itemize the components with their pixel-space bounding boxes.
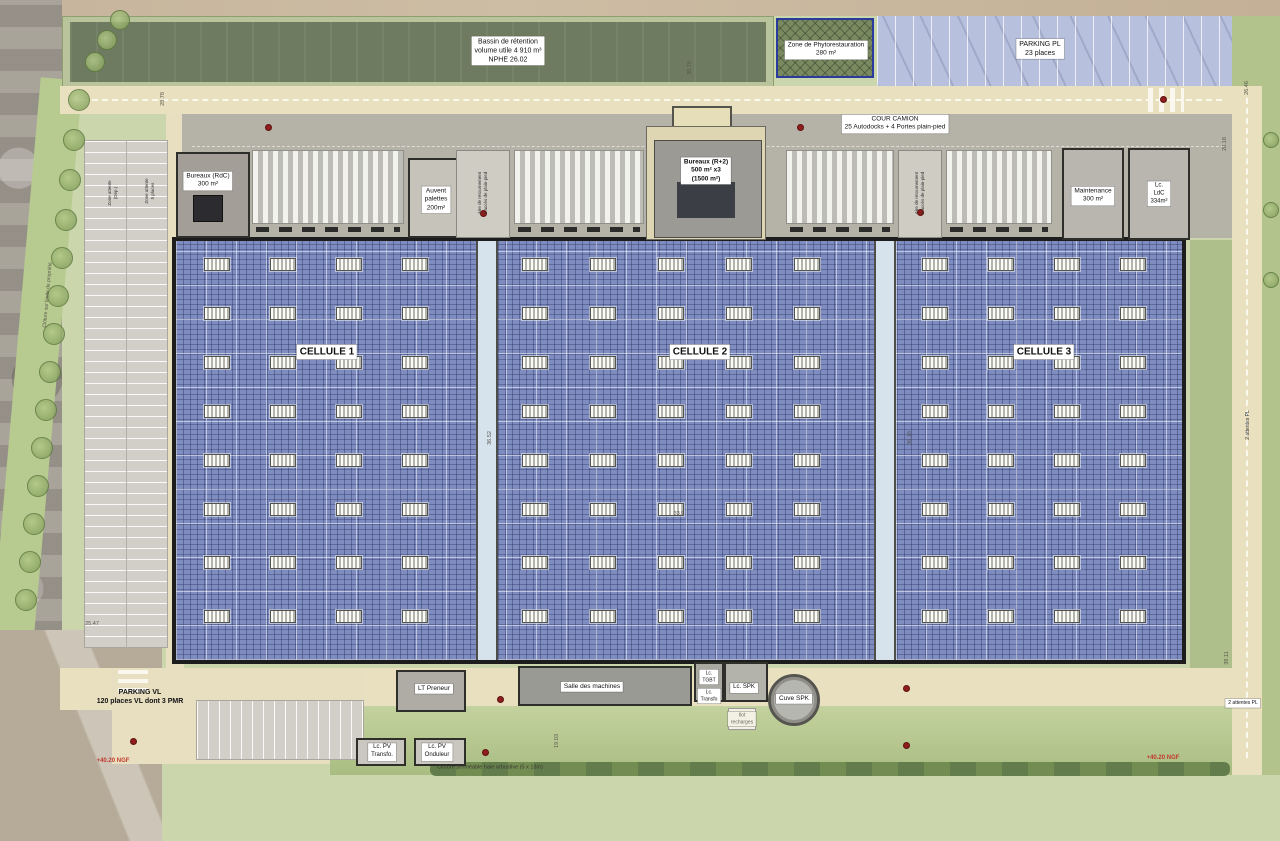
dock-dashes [790,227,890,232]
roof-skylight [336,405,362,418]
roof-skylight [1054,258,1080,271]
ngf-left-label: +40.20 NGF [94,757,133,767]
roof-skylight [1054,307,1080,320]
roof-skylight [270,307,296,320]
dock-doors-strip [252,150,404,224]
roof-skylight [204,258,230,271]
cloture-permeable-label: Clôture perméable haie arbustive (5 x 13… [434,763,546,772]
dimension-label: 38.70 [687,61,693,75]
roof-skylight [1054,503,1080,516]
zone-phyto-label: Zone de Phytorestauration 280 m² [785,41,868,60]
dimension-label: 20.18 [1222,137,1228,151]
roof-skylight [336,454,362,467]
cuve-spk-label: Cuve SPK [776,694,812,704]
ngf-right-label: +40.20 NGF [1144,754,1183,764]
roof-skylight [522,307,548,320]
roof-skylight [204,503,230,516]
tree [85,52,105,72]
roof-skylight [922,356,948,369]
roof-skylight [270,258,296,271]
tree [1263,202,1279,218]
tree [1263,272,1279,288]
roof-skylight [270,405,296,418]
tree [55,209,77,231]
roof-skylight [336,307,362,320]
marker-dot [903,742,910,749]
roof-skylight [922,258,948,271]
ldc-label: Lc. LdC 334m² [1147,181,1170,206]
marker-dot [797,124,804,131]
dimension-label: 39.11 [1224,651,1230,664]
roof-skylight [522,454,548,467]
roof-skylight [988,307,1014,320]
roof-skylight [726,454,752,467]
lc-tgbt-label: Lc. TGBT [699,670,718,685]
roof-skylight [522,610,548,623]
parking-vl-label: PARKING VL 120 places VL dont 3 PMR [94,687,187,707]
roof-skylight [522,405,548,418]
roof-skylight [794,258,820,271]
roof-skylight [794,610,820,623]
lt-preneur-label: LT Preneur [415,684,453,694]
dimension-label: 28.78 [160,92,166,106]
roof-skylight [402,610,428,623]
attentes-pl-2-label: 2 attentes PL [1225,699,1260,708]
roof-skylight [590,503,616,516]
cour-camion-label: COUR CAMION 25 Autodocks + 4 Portes plai… [842,115,949,134]
roof-skylight [336,258,362,271]
lc-pv-onduleur-label: Lc. PV Onduleur [422,743,453,761]
aire-retournement-right-label: Aire de retournement 2 accès de plain-pi… [913,169,927,218]
annotation-overlay: Bassin de rétention volume utile 4 910 m… [0,0,1280,841]
bureaux-rdc-label: Bureaux (RdC) 300 m² [183,172,232,191]
dimension-label: 19.03 [554,734,560,748]
lc-transfo-label: Lc. Transfo [698,689,721,704]
tree [31,437,53,459]
lc-spk-label: Lc. SPK [730,683,758,693]
roof-skylight [590,556,616,569]
roof-skylight [1054,405,1080,418]
roof-skylight [204,556,230,569]
marker-dot [497,696,504,703]
roof-skylight [658,405,684,418]
roof-skylight [1120,258,1146,271]
zone-attente-dep-label: Zone attente (Dép.) [106,177,120,208]
roof-skylight [922,503,948,516]
roof-skylight [336,556,362,569]
zone-attente-places-label: Zone attente 5 places [143,175,157,206]
roof-skylight [204,307,230,320]
roof-skylight [794,556,820,569]
ilot-recharges-label: Ilot recharges [728,712,756,727]
dimension-label: 25.47 [85,621,99,627]
site-plan-canvas: Bassin de rétention volume utile 4 910 m… [0,0,1280,841]
roof-skylight [204,356,230,369]
roof-skylight [402,307,428,320]
parking-pl-label: PARKING PL 23 places [1016,39,1064,59]
dock-dashes [950,227,1048,232]
roof-skylight [726,503,752,516]
roof-skylight [590,610,616,623]
cellule-2-label: CELLULE 2 [670,345,730,360]
marker-dot [903,685,910,692]
roof-skylight [270,454,296,467]
roof-skylight [590,356,616,369]
dimension-label: 36.18 [907,431,913,445]
roof-skylight [270,356,296,369]
roof-skylight [590,307,616,320]
roof-skylight [270,556,296,569]
dock-dashes [256,227,400,232]
salle-machines-label: Salle des machines [561,682,623,692]
dimension-label: 36.52 [487,431,493,445]
roof-skylight [402,258,428,271]
roof-skylight [590,405,616,418]
roof-skylight [922,610,948,623]
tree [27,475,49,497]
roof-skylight [522,556,548,569]
roof-skylight [794,503,820,516]
roof-skylight [1054,454,1080,467]
tree [19,551,41,573]
roof-skylight [726,258,752,271]
roof-skylight [522,503,548,516]
aire-retournement-left-label: Aire de retournement 2 accès de plain-pi… [476,169,490,218]
tree [1263,132,1279,148]
dimension-label: 33.9 [674,511,685,517]
roof-skylight [658,610,684,623]
auvent-palettes-label: Auvent palettes 200m² [422,186,451,213]
roof-skylight [658,258,684,271]
roof-skylight [1120,405,1146,418]
dimension-label: 26.46 [1244,81,1250,95]
roof-skylight [336,503,362,516]
roof-skylight [270,503,296,516]
roof-skylight [988,610,1014,623]
roof-skylight [922,454,948,467]
roof-skylight [402,454,428,467]
roof-skylight [402,556,428,569]
roof-skylight [204,405,230,418]
bureaux-r2-label: Bureaux (R+2) 500 m² x3 (1500 m²) [681,157,731,184]
tree [39,361,61,383]
marker-dot [130,738,137,745]
dock-doors-strip [786,150,894,224]
roof-skylight [1120,556,1146,569]
tree [35,399,57,421]
roof-skylight [1120,503,1146,516]
roof-skylight [988,556,1014,569]
roof-skylight [726,610,752,623]
roof-skylight [402,356,428,369]
roof-skylight [988,503,1014,516]
roof-skylight [1054,610,1080,623]
roof-skylight [270,610,296,623]
roof-skylight [522,258,548,271]
roof-skylight [1120,610,1146,623]
roof-skylight [590,454,616,467]
roof-skylight [794,454,820,467]
cellule-1-label: CELLULE 1 [297,345,357,360]
tree [59,169,81,191]
roof-skylight [922,307,948,320]
dock-dashes [518,227,640,232]
roof-skylight [922,405,948,418]
roof-skylight [204,610,230,623]
tree [97,30,117,50]
roof-skylight [590,258,616,271]
roof-skylight [658,556,684,569]
tree [63,129,85,151]
roof-skylight [726,405,752,418]
roof-skylight [402,405,428,418]
attentes-pl-1-label: 2 attentes PL [1244,407,1253,442]
roof-skylight [402,503,428,516]
roof-skylight [922,556,948,569]
marker-dot [1160,96,1167,103]
tree [23,513,45,535]
marker-dot [265,124,272,131]
cellule-3-label: CELLULE 3 [1014,345,1074,360]
dock-doors-strip [514,150,644,224]
marker-dot [482,749,489,756]
roof-skylight [988,258,1014,271]
roof-skylight [1120,307,1146,320]
bassin-retention-label: Bassin de rétention volume utile 4 910 m… [472,36,545,65]
roof-skylight [658,307,684,320]
maintenance-label: Maintenance 300 m² [1071,187,1114,206]
tree [15,589,37,611]
roof-skylight [1054,556,1080,569]
tree [68,89,90,111]
roof-skylight [1120,454,1146,467]
tree [110,10,130,30]
roof-skylight [1120,356,1146,369]
dock-doors-strip [946,150,1052,224]
roof-skylight [794,356,820,369]
roof-skylight [658,454,684,467]
roof-skylight [726,307,752,320]
roof-skylight [794,405,820,418]
roof-skylight [336,610,362,623]
roof-skylight [988,454,1014,467]
roof-skylight [726,556,752,569]
roof-skylight [522,356,548,369]
roof-skylight [988,356,1014,369]
roof-skylight [988,405,1014,418]
roof-skylight [794,307,820,320]
roof-skylight [204,454,230,467]
lc-pv-transfo-label: Lc. PV Transfo. [368,743,396,761]
